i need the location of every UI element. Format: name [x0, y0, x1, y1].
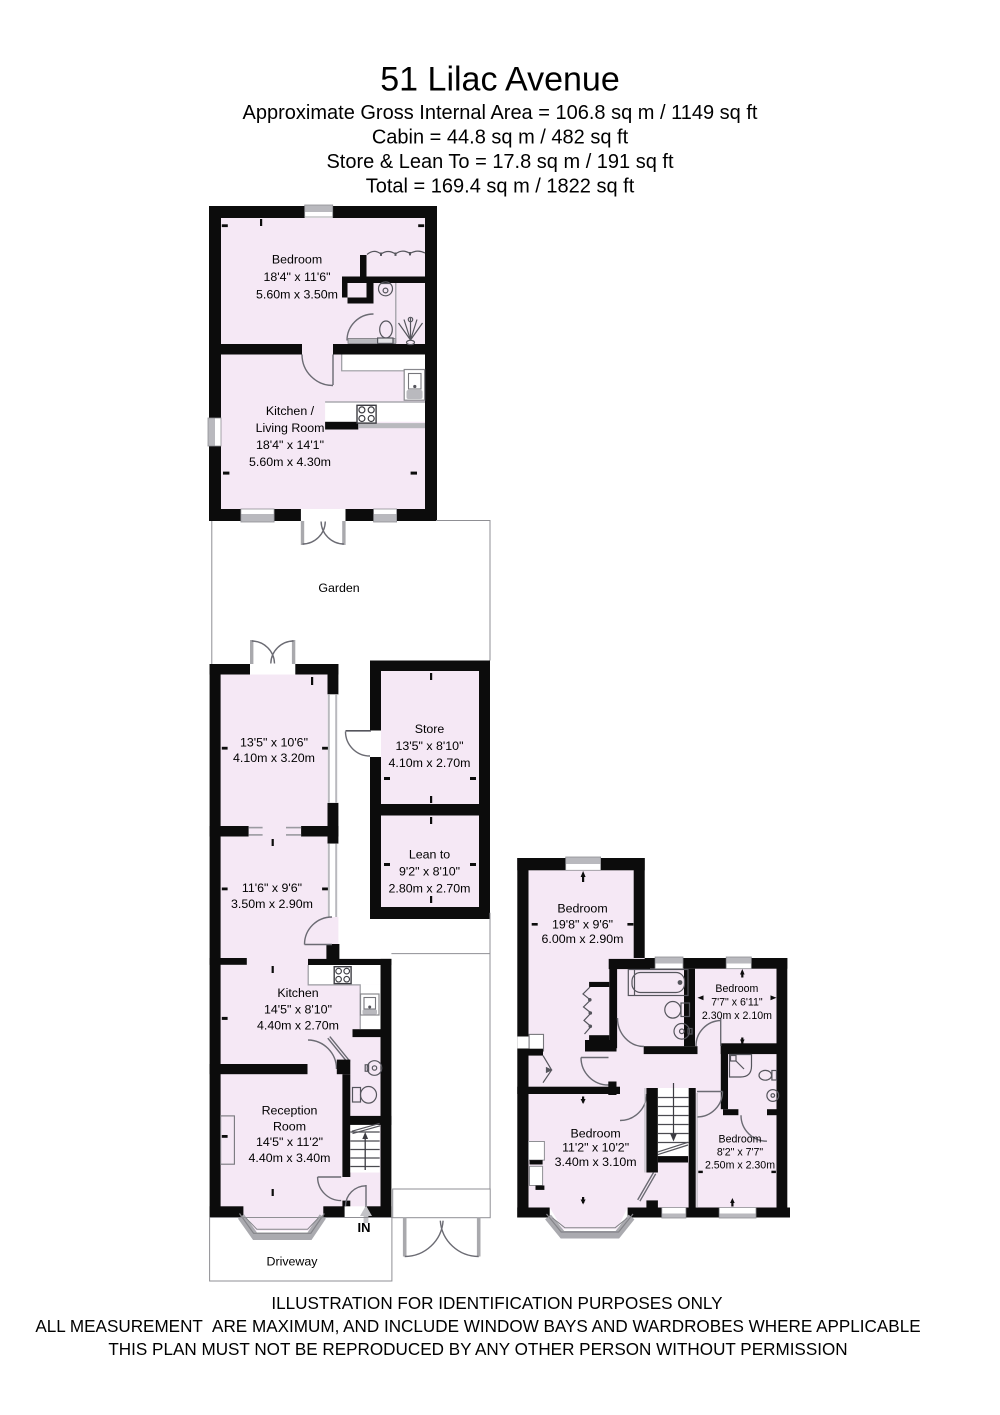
svg-text:3.50m x 2.90m: 3.50m x 2.90m: [231, 897, 313, 911]
svg-text:19'8" x 9'6": 19'8" x 9'6": [552, 918, 613, 932]
svg-text:Total = 169.4 sq m / 1822 sq f: Total = 169.4 sq m / 1822 sq ft: [366, 176, 635, 198]
svg-text:6.00m x 2.90m: 6.00m x 2.90m: [542, 932, 624, 946]
svg-text:14'5" x 8'10": 14'5" x 8'10": [264, 1003, 332, 1017]
svg-text:4.10m x 3.20m: 4.10m x 3.20m: [233, 751, 315, 765]
svg-text:Bedroom: Bedroom: [715, 983, 758, 995]
svg-text:9'2" x 8'10": 9'2" x 8'10": [399, 865, 460, 879]
svg-text:7'7" x 6'11": 7'7" x 6'11": [711, 997, 763, 1009]
svg-text:5.60m x 4.30m: 5.60m x 4.30m: [249, 455, 331, 469]
svg-text:Living Room: Living Room: [256, 421, 325, 435]
svg-text:18'4" x 14'1": 18'4" x 14'1": [256, 438, 324, 452]
svg-text:13'5" x 10'6": 13'5" x 10'6": [240, 736, 308, 750]
svg-text:Store: Store: [415, 722, 445, 736]
svg-text:11'2" x 10'2": 11'2" x 10'2": [562, 1141, 629, 1155]
svg-text:13'5" x 8'10": 13'5" x 8'10": [396, 739, 464, 753]
svg-text:Bedroom: Bedroom: [719, 1133, 762, 1145]
svg-text:4.10m x 2.70m: 4.10m x 2.70m: [389, 756, 471, 770]
svg-text:8'2" x 7'7": 8'2" x 7'7": [717, 1147, 764, 1159]
svg-text:Approximate Gross Internal Are: Approximate Gross Internal Area = 106.8 …: [243, 102, 758, 124]
svg-text:2.80m x 2.70m: 2.80m x 2.70m: [389, 882, 471, 896]
svg-text:Garden: Garden: [318, 581, 359, 595]
svg-text:Kitchen /: Kitchen /: [266, 404, 315, 418]
svg-text:Reception: Reception: [262, 1104, 318, 1118]
svg-text:2.50m x 2.30m: 2.50m x 2.30m: [705, 1160, 775, 1172]
svg-text:18'4" x 11'6": 18'4" x 11'6": [263, 270, 330, 284]
svg-text:IN: IN: [358, 1220, 371, 1235]
svg-text:4.40m x 2.70m: 4.40m x 2.70m: [257, 1019, 339, 1033]
svg-text:Driveway: Driveway: [267, 1255, 319, 1269]
svg-text:Bedroom: Bedroom: [272, 253, 322, 267]
svg-text:THIS PLAN MUST NOT BE REPRODUC: THIS PLAN MUST NOT BE REPRODUCED BY ANY …: [108, 1340, 847, 1359]
svg-text:Lean to: Lean to: [409, 848, 450, 862]
svg-text:Kitchen: Kitchen: [277, 986, 318, 1000]
svg-text:2.30m x 2.10m: 2.30m x 2.10m: [702, 1010, 772, 1022]
svg-text:Room: Room: [273, 1120, 306, 1134]
svg-text:4.40m x 3.40m: 4.40m x 3.40m: [249, 1151, 331, 1165]
svg-text:ALL MEASUREMENT ARE MAXIMUM,: ALL MEASUREMENT ARE MAXIMUM, AND INCLUDE…: [35, 1317, 920, 1336]
svg-text:ILLUSTRATION FOR IDENTIFICATIO: ILLUSTRATION FOR IDENTIFICATION PURPOSES…: [271, 1294, 723, 1313]
svg-text:Bedroom: Bedroom: [557, 902, 607, 916]
svg-text:51 Lilac Avenue: 51 Lilac Avenue: [380, 61, 619, 99]
svg-text:5.60m x 3.50m: 5.60m x 3.50m: [256, 288, 338, 302]
svg-text:Bedroom: Bedroom: [570, 1126, 620, 1140]
svg-text:14'5" x 11'2": 14'5" x 11'2": [256, 1135, 323, 1149]
svg-text:Store & Lean To = 17.8 sq m /: Store & Lean To = 17.8 sq m / 191 sq ft: [326, 151, 674, 173]
svg-text:11'6" x 9'6": 11'6" x 9'6": [242, 881, 302, 895]
svg-text:3.40m x 3.10m: 3.40m x 3.10m: [555, 1155, 637, 1169]
svg-text:Cabin = 44.8 sq m / 482 sq ft: Cabin = 44.8 sq m / 482 sq ft: [372, 127, 629, 149]
